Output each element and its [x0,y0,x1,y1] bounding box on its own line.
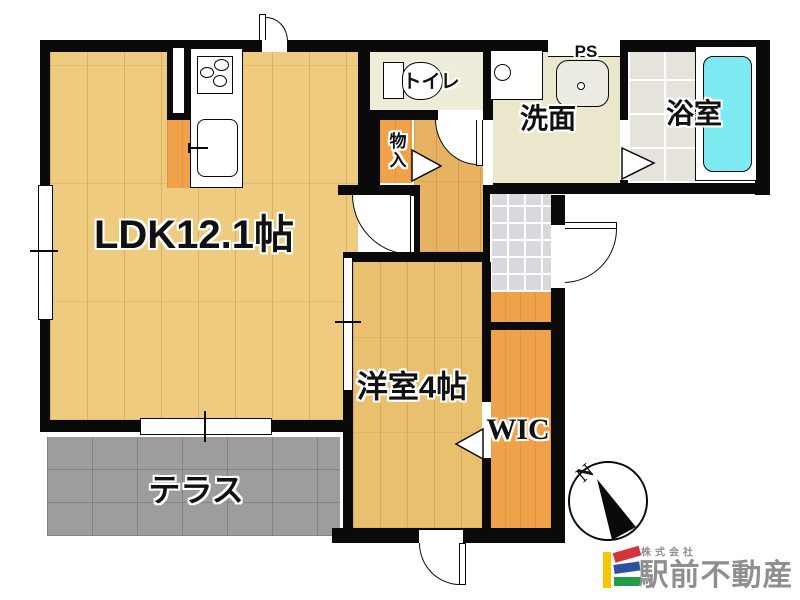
terrace-window-tick [204,411,206,442]
outer-right-wall [755,40,770,195]
entrance-tile-floor [490,192,551,292]
logo-bar-yellow-icon [603,552,611,588]
western-room-door-swing-arc [419,543,460,585]
shoe-cabinet [490,292,551,322]
western-door-opening [419,530,463,543]
toilet-door-opening [438,110,483,120]
shoe-wic-wall [483,322,560,330]
left-window-tick [30,250,58,252]
sliding-opening-tick [335,321,361,323]
western-room-door-leaf [459,543,466,585]
kitchen-faucet-icon [188,143,190,153]
western-room-label: 洋室4帖 [357,362,467,407]
logo-stripe-green-icon [614,577,641,586]
terrace-window [140,418,272,435]
company-name: 駅前不動産 [639,550,794,594]
storage-label: 物入 [384,132,409,170]
top-door-opening [262,40,287,52]
toilet-room-label: トイレ [402,67,459,94]
western-top-wall [343,252,490,262]
bathroom-door-opening [620,120,628,180]
hall-stub-wall [414,195,420,255]
logo-stripe-blue-icon [613,561,640,574]
entrance-door-leaf [562,222,617,229]
logo-stripe-red-icon [613,546,642,563]
top-door-swing-arc [266,17,288,41]
outer-top-wall [40,40,770,52]
ldk-room-label: LDK12.1帖 [94,202,294,260]
kitchen-faucet-icon [190,147,208,149]
toilet-tank-icon [383,62,404,99]
kitchen-stub-niche [173,48,184,113]
bathroom-label: 浴室 [666,92,722,132]
stove-burner-icon [214,59,229,71]
stove-burner-icon [200,67,214,78]
washing-machine-faucet-icon [494,64,511,81]
washroom-sliding-track [487,52,489,118]
washroom-label: 洗面 [520,97,576,137]
pipe-space-label: PS [575,42,598,62]
kitchen-cabinet [167,120,190,188]
ldk-door-header-wall [338,185,420,195]
floorplan-canvas: N LDK12.1帖 トイレ 物入 洗面 PS 浴室 洋室4帖 WIC テラス … [0,0,800,600]
left-window [38,185,53,320]
toilet-door-leaf [476,118,483,166]
ldk-door-swing-arc [352,195,412,255]
washroom-door-opening [483,120,493,185]
storage-left-wall [370,110,380,185]
entrance-door-swing-arc [563,229,617,283]
wic-label: WIC [486,413,549,447]
company-logo-mark [603,550,643,590]
wing-bottom-wall [483,183,770,194]
stove-burner-icon [213,75,227,87]
vanity-drain-icon [577,82,585,90]
top-door-leaf [259,14,266,42]
entrance-door-opening [551,225,565,288]
ldk-western-sliding-opening [344,258,352,390]
terrace-label: テラス [148,465,243,511]
entrance-left-wall [483,190,490,330]
